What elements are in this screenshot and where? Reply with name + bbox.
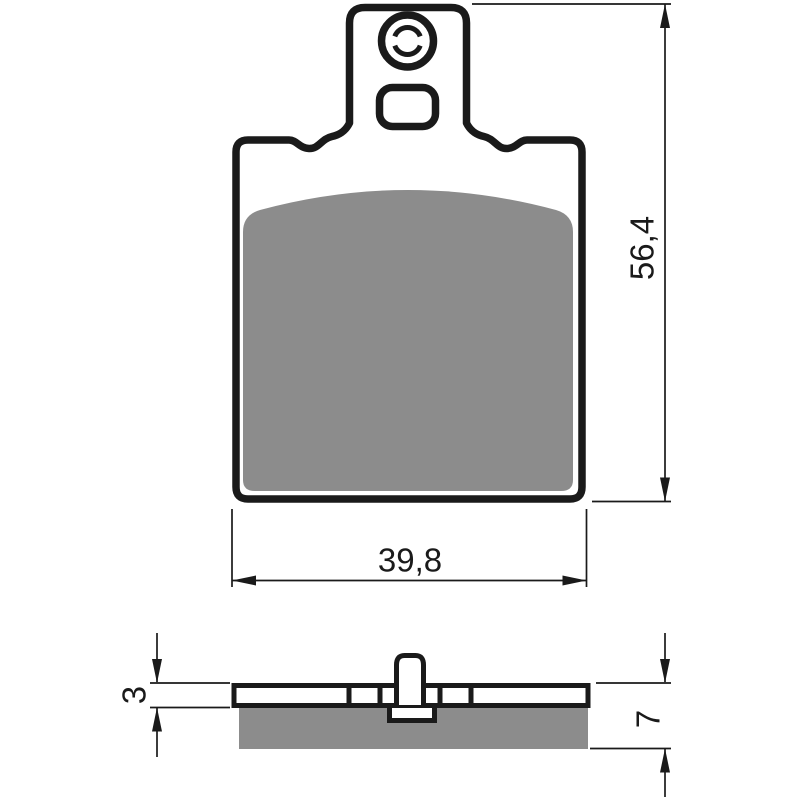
dimension-overall-width: 39,8: [232, 509, 587, 587]
height-dimension-label: 56,4: [624, 216, 661, 280]
center-pin: [397, 656, 424, 706]
thickness7-arrow-top: [660, 659, 670, 683]
dimension-backplate-thickness: 3: [116, 633, 231, 757]
width-arrow-left: [232, 576, 256, 586]
thickness3-arrow-bottom: [152, 708, 162, 732]
profile-view: [234, 656, 588, 750]
friction-material-front: [243, 190, 573, 491]
pin-hole-circle: [382, 15, 434, 67]
width-arrow-right: [563, 576, 587, 586]
front-view: [236, 8, 582, 500]
thickness7-label: 7: [630, 710, 667, 728]
brake-pad-technical-drawing: 56,4 39,8 3: [0, 0, 800, 800]
height-arrow-top: [660, 4, 670, 28]
pin-hole-inner-arc-top: [395, 27, 420, 36]
square-hole: [380, 88, 436, 127]
thickness3-label: 3: [116, 686, 153, 704]
width-dimension-label: 39,8: [378, 542, 442, 579]
height-arrow-bottom: [660, 478, 670, 502]
thickness7-arrow-bottom: [660, 749, 670, 773]
thickness3-arrow-top: [152, 659, 162, 683]
pin-hole-inner-arc-bottom: [395, 46, 420, 55]
dimension-total-thickness: 7: [590, 633, 671, 797]
